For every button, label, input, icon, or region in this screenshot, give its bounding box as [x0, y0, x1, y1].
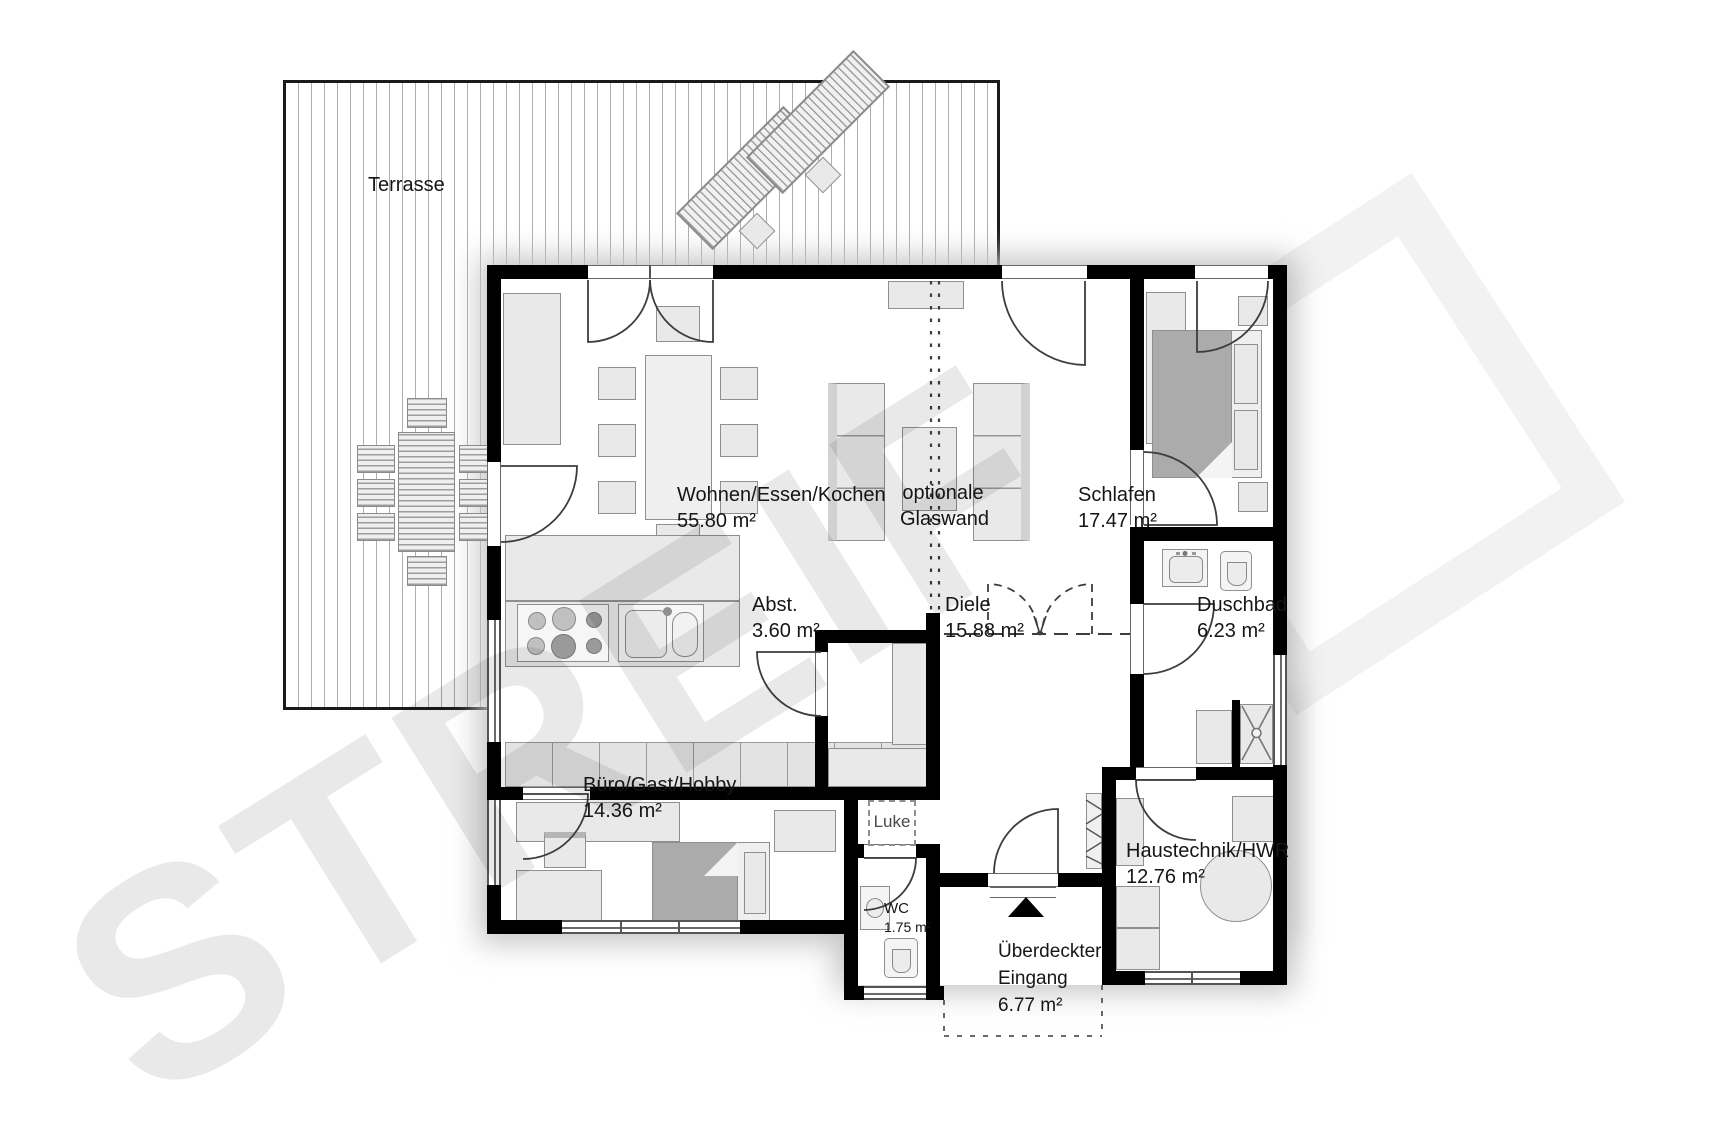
wall	[1087, 265, 1195, 279]
dining-chair	[720, 424, 758, 457]
wall	[844, 800, 858, 1000]
room-name: Diele	[945, 592, 1024, 618]
room-name: Büro/Gast/Hobby	[583, 772, 736, 798]
room-label-wohnen: Wohnen/Essen/Kochen 55.80 m²	[677, 482, 886, 534]
outdoor-chair	[357, 445, 395, 473]
room-area: 17.47 m²	[1078, 508, 1157, 534]
wall	[487, 265, 501, 462]
storage-shelf	[828, 748, 928, 787]
kitchen-counter-divider	[505, 600, 740, 602]
room-label-duschbad: Duschbad 6.23 m²	[1197, 592, 1287, 644]
wall	[1130, 541, 1144, 604]
room-label-eingang: Überdeckter Eingang 6.77 m²	[998, 938, 1102, 1019]
hwr-appliance-stack	[1116, 886, 1160, 928]
pillow	[1234, 344, 1258, 404]
storage-door-frame	[815, 652, 828, 716]
desk-chair	[544, 832, 586, 868]
hwr-appliance	[1232, 796, 1274, 842]
wall	[487, 920, 562, 934]
guest-bed-pillow	[744, 852, 766, 914]
wall	[740, 920, 858, 934]
room-area: 1.75 m²	[884, 918, 931, 936]
wall	[916, 844, 926, 858]
floor-plan: Terrasse Wohnen/Essen/Kochen 55.80 m² op…	[0, 0, 1720, 1147]
wall	[487, 546, 501, 620]
door-mullion	[649, 265, 651, 279]
guest-duvet-fold	[704, 842, 738, 876]
burner	[527, 637, 545, 655]
hwr-door-frame	[1136, 767, 1196, 780]
shower-tray	[1240, 704, 1273, 764]
sideboard	[888, 281, 964, 309]
room-name: Abst.	[752, 592, 820, 618]
room-name: Terrasse	[368, 172, 445, 198]
wall	[487, 265, 588, 279]
window-mullion	[1191, 971, 1193, 985]
label-luke: Luke	[868, 809, 916, 835]
room-name: Eingang	[998, 965, 1102, 992]
wall	[1102, 767, 1136, 780]
wall	[1130, 279, 1144, 450]
outdoor-chair	[357, 513, 395, 541]
dining-chair	[598, 481, 636, 514]
room-label-abstell: Abst. 3.60 m²	[752, 592, 820, 644]
outdoor-chair	[357, 479, 395, 507]
dining-chair	[598, 424, 636, 457]
wall	[926, 986, 944, 1000]
room-name: Duschbad	[1197, 592, 1287, 618]
knob	[586, 638, 602, 654]
wall	[1102, 780, 1116, 985]
office-south-window	[562, 920, 740, 934]
room-label-schlafen: Schlafen 17.47 m²	[1078, 482, 1157, 534]
room-area: 3.60 m²	[752, 618, 820, 644]
wall	[926, 613, 940, 800]
room-label-diele: Diele 15.88 m²	[945, 592, 1024, 644]
wc-toilet-bowl	[892, 949, 911, 973]
room-label-buero: Büro/Gast/Hobby 14.36 m²	[583, 772, 736, 824]
duvet-fold	[1196, 442, 1232, 478]
pillow	[1234, 410, 1258, 470]
bath-window	[1273, 655, 1287, 765]
room-label-terrasse: Terrasse	[368, 172, 445, 198]
room-area: 6.77 m²	[998, 992, 1102, 1019]
nightstand	[1238, 296, 1268, 326]
wc-window	[864, 986, 926, 1000]
wall	[1240, 971, 1287, 985]
wc-basin-bowl	[866, 898, 884, 918]
hwr-appliance-stack	[1116, 928, 1160, 970]
room-area: 14.36 m²	[583, 798, 736, 824]
faucet	[663, 607, 672, 616]
room-name: Haustechnik/HWR	[1126, 838, 1289, 864]
outdoor-table	[398, 432, 455, 552]
outdoor-chair	[407, 556, 447, 586]
dining-chair	[598, 367, 636, 400]
desk	[516, 870, 602, 922]
wall	[815, 630, 940, 643]
washbasin-bowl	[1169, 556, 1203, 583]
entrance-door-frame	[988, 873, 1058, 887]
sink-drainer	[672, 612, 698, 657]
terrace-door-frame	[487, 462, 501, 546]
outdoor-chair	[407, 398, 447, 428]
kitchen-window	[487, 620, 501, 742]
office-window	[487, 800, 501, 885]
glaswand-line1: optionale	[900, 480, 986, 506]
bath-door-frame	[1130, 604, 1144, 674]
office-cabinet	[774, 810, 836, 852]
wall	[815, 716, 828, 787]
wall	[713, 265, 1002, 279]
shower-partition-wall	[1232, 700, 1240, 767]
window-mullion	[678, 920, 680, 934]
entrance-arrow-icon	[1008, 897, 1044, 917]
coat-rack	[1086, 793, 1102, 869]
window-mullion	[620, 920, 622, 934]
room-area: 6.23 m²	[1197, 618, 1287, 644]
sink-bowl	[625, 610, 667, 658]
garden-door-frame	[1195, 265, 1268, 279]
room-name: WC	[884, 900, 931, 918]
wall	[487, 787, 523, 800]
washing-machine	[1196, 710, 1232, 764]
room-area: 55.80 m²	[677, 508, 886, 534]
room-name: Wohnen/Essen/Kochen	[677, 482, 886, 508]
toilet-bowl	[1227, 562, 1247, 586]
wall	[1196, 767, 1287, 780]
tall-cupboard	[503, 293, 561, 445]
room-label-haustechnik: Haustechnik/HWR 12.76 m²	[1126, 838, 1289, 890]
wall	[815, 643, 828, 652]
hatch-name: Luke	[868, 809, 916, 835]
room-name: Überdeckter	[998, 938, 1102, 965]
office-door-frame	[523, 787, 590, 800]
burner	[551, 634, 576, 659]
nightstand	[1238, 482, 1268, 512]
burner	[528, 612, 546, 630]
terrace-door-frame	[1002, 265, 1087, 279]
storage-shelf	[892, 643, 928, 745]
glaswand-line2: Glaswand	[900, 506, 986, 532]
room-name: Schlafen	[1078, 482, 1157, 508]
burner	[552, 607, 576, 631]
dining-chair	[656, 306, 700, 342]
label-glaswand: optionale Glaswand	[900, 480, 986, 532]
room-label-wc: WC 1.75 m²	[884, 900, 931, 936]
knob	[586, 612, 602, 628]
wc-door-frame	[864, 844, 916, 858]
dining-chair	[720, 367, 758, 400]
wall	[1130, 674, 1144, 767]
room-area: 12.76 m²	[1126, 864, 1289, 890]
room-area: 15.88 m²	[945, 618, 1024, 644]
wall	[1058, 873, 1102, 887]
